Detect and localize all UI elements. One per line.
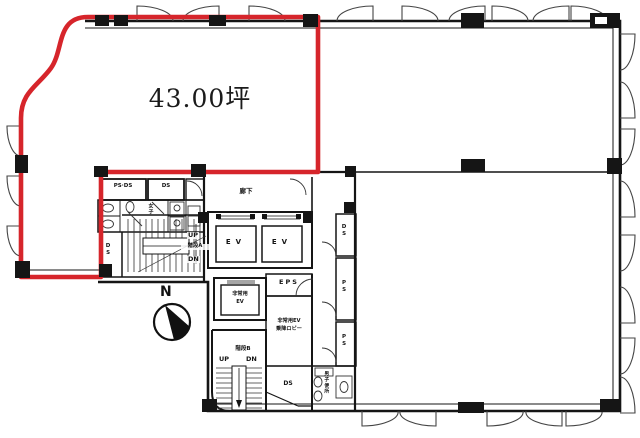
stair-a-label: 階段A (181, 244, 209, 250)
emergency-ev-lobby-label: 非常用EV 乗降ロビー (267, 317, 311, 334)
room-label-ps-east-2: PS (341, 334, 347, 348)
stair-a-dn-label: DN (187, 256, 200, 263)
emergency-elevator-label: 非常用 EV (222, 291, 258, 307)
lobby-line1: 非常用EV (267, 317, 311, 325)
room-label-womens-wc: 女子 (147, 203, 153, 215)
door-arcs (187, 179, 336, 362)
emergency-elevator-line1: 非常用 (222, 291, 258, 299)
stair-b-label: 階段B (226, 346, 260, 352)
elevator-1-label: EV (216, 239, 256, 247)
window-arcs-right (620, 34, 635, 413)
room-label-ds-top: DS (149, 183, 183, 189)
room-label-ds-south: DS (270, 381, 306, 388)
area-size-label: 43.00坪 (135, 85, 265, 113)
room-label-ps-east-1: PS (341, 280, 347, 294)
room-label-mens-wc: 男子便所 (323, 371, 328, 394)
floor-plan-drawing (0, 0, 640, 438)
emergency-elevator-line2: EV (222, 299, 258, 307)
north-compass-icon (154, 304, 190, 340)
room-label-corridor: 廊下 (232, 188, 260, 195)
room-label-ds-east: DS (341, 224, 347, 238)
stair-b-up-label: UP (219, 356, 229, 363)
room-label-ps-ds: PS·DS (101, 183, 145, 189)
floor-plan: 43.00坪 N PS·DS DS 廊下 女子 DS UP 階段A DN EV … (0, 0, 640, 438)
stair-b (216, 366, 262, 410)
room-label-eps: EPS (267, 279, 311, 286)
window-arcs-bottom (362, 411, 602, 426)
interior-walls (98, 172, 620, 411)
lobby-line2: 乗降ロビー (267, 325, 311, 333)
elevator-2-label: EV (262, 239, 302, 247)
stair-b-dn-label: DN (246, 356, 257, 363)
north-label: N (160, 285, 172, 300)
room-label-ds-west: DS (105, 243, 111, 257)
stair-a-up-label: UP (187, 232, 199, 239)
